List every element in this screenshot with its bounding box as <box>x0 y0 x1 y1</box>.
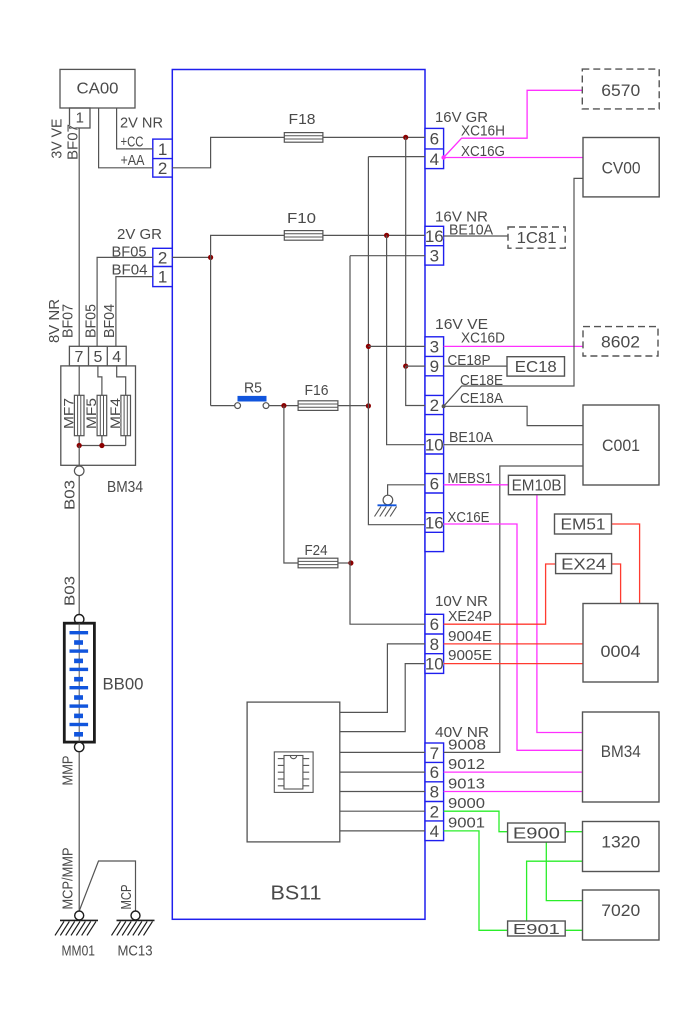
svg-text:F16: F16 <box>305 382 329 399</box>
svg-text:10: 10 <box>425 655 444 674</box>
svg-text:XC16E: XC16E <box>448 509 490 526</box>
svg-text:CV00: CV00 <box>602 158 641 177</box>
svg-text:2V NR: 2V NR <box>120 115 163 132</box>
svg-text:2: 2 <box>430 802 439 821</box>
svg-text:BF05: BF05 <box>83 304 100 338</box>
svg-text:XE24P: XE24P <box>448 608 492 625</box>
svg-text:1C81: 1C81 <box>517 230 557 247</box>
svg-text:6: 6 <box>430 474 439 493</box>
svg-text:XC16D: XC16D <box>461 329 505 346</box>
svg-text:7020: 7020 <box>601 901 640 920</box>
svg-text:MCP/MMP: MCP/MMP <box>60 848 77 910</box>
svg-text:6: 6 <box>430 130 439 149</box>
svg-text:3V VE: 3V VE <box>49 119 66 159</box>
svg-text:1320: 1320 <box>601 833 640 852</box>
svg-text:MC13: MC13 <box>118 943 153 960</box>
svg-text:7: 7 <box>430 744 439 763</box>
svg-text:+AA: +AA <box>121 152 145 169</box>
svg-text:BE10A: BE10A <box>449 429 493 446</box>
svg-text:9005E: 9005E <box>448 647 492 664</box>
svg-text:1: 1 <box>158 268 167 287</box>
svg-text:8: 8 <box>430 635 439 654</box>
svg-text:B03: B03 <box>62 480 79 510</box>
svg-text:10: 10 <box>425 435 444 454</box>
svg-text:7: 7 <box>75 349 84 366</box>
svg-text:BM34: BM34 <box>107 479 143 496</box>
svg-text:MF4: MF4 <box>107 398 123 429</box>
svg-text:F24: F24 <box>305 542 328 559</box>
svg-text:E900: E900 <box>513 825 560 842</box>
svg-text:F10: F10 <box>287 210 316 227</box>
svg-text:EM51: EM51 <box>561 517 606 534</box>
svg-text:3: 3 <box>430 338 439 357</box>
svg-text:B03: B03 <box>62 576 79 606</box>
svg-text:0004: 0004 <box>601 642 641 661</box>
svg-text:R5: R5 <box>244 380 262 397</box>
svg-text:9013: 9013 <box>448 775 485 792</box>
svg-text:9001: 9001 <box>448 814 485 831</box>
svg-text:CA00: CA00 <box>77 80 119 97</box>
svg-text:BF07: BF07 <box>60 304 77 338</box>
svg-text:4: 4 <box>430 822 439 841</box>
svg-text:MF7: MF7 <box>60 398 76 429</box>
svg-text:E901: E901 <box>513 921 560 938</box>
svg-text:3: 3 <box>430 246 439 265</box>
svg-text:9: 9 <box>430 357 439 376</box>
svg-text:MCP: MCP <box>118 885 135 910</box>
svg-text:F18: F18 <box>289 111 316 128</box>
svg-text:EX24: EX24 <box>561 556 606 573</box>
svg-text:4: 4 <box>112 349 121 366</box>
svg-text:9012: 9012 <box>448 756 485 773</box>
svg-text:BF04: BF04 <box>101 304 118 338</box>
svg-text:9000: 9000 <box>448 795 485 812</box>
svg-text:BS11: BS11 <box>271 883 322 905</box>
svg-text:4: 4 <box>430 150 439 169</box>
svg-text:16: 16 <box>425 227 444 246</box>
svg-text:6: 6 <box>430 763 439 782</box>
svg-text:1: 1 <box>158 140 167 159</box>
svg-text:2: 2 <box>158 248 167 267</box>
svg-text:9004E: 9004E <box>448 628 492 645</box>
svg-text:1: 1 <box>76 109 84 126</box>
svg-text:8: 8 <box>430 783 439 802</box>
svg-text:5: 5 <box>93 349 102 366</box>
svg-text:MM01: MM01 <box>62 943 96 960</box>
svg-text:C001: C001 <box>602 436 640 455</box>
svg-text:2: 2 <box>158 159 167 178</box>
svg-text:MMP: MMP <box>60 756 77 786</box>
svg-text:+CC: +CC <box>121 133 144 150</box>
svg-text:2: 2 <box>430 396 439 415</box>
svg-text:BM34: BM34 <box>601 742 641 761</box>
svg-text:EM10B: EM10B <box>512 478 562 495</box>
svg-text:EC18: EC18 <box>515 359 557 376</box>
svg-text:XC16H: XC16H <box>461 122 505 139</box>
svg-text:9008: 9008 <box>448 736 486 753</box>
svg-text:2V GR: 2V GR <box>117 226 162 243</box>
svg-text:BB00: BB00 <box>103 675 144 694</box>
svg-text:8602: 8602 <box>601 332 640 351</box>
svg-text:6570: 6570 <box>601 81 640 100</box>
svg-text:6: 6 <box>430 615 439 634</box>
svg-text:MF5: MF5 <box>83 398 99 429</box>
svg-text:16: 16 <box>425 514 444 533</box>
svg-text:CE18A: CE18A <box>460 390 503 407</box>
